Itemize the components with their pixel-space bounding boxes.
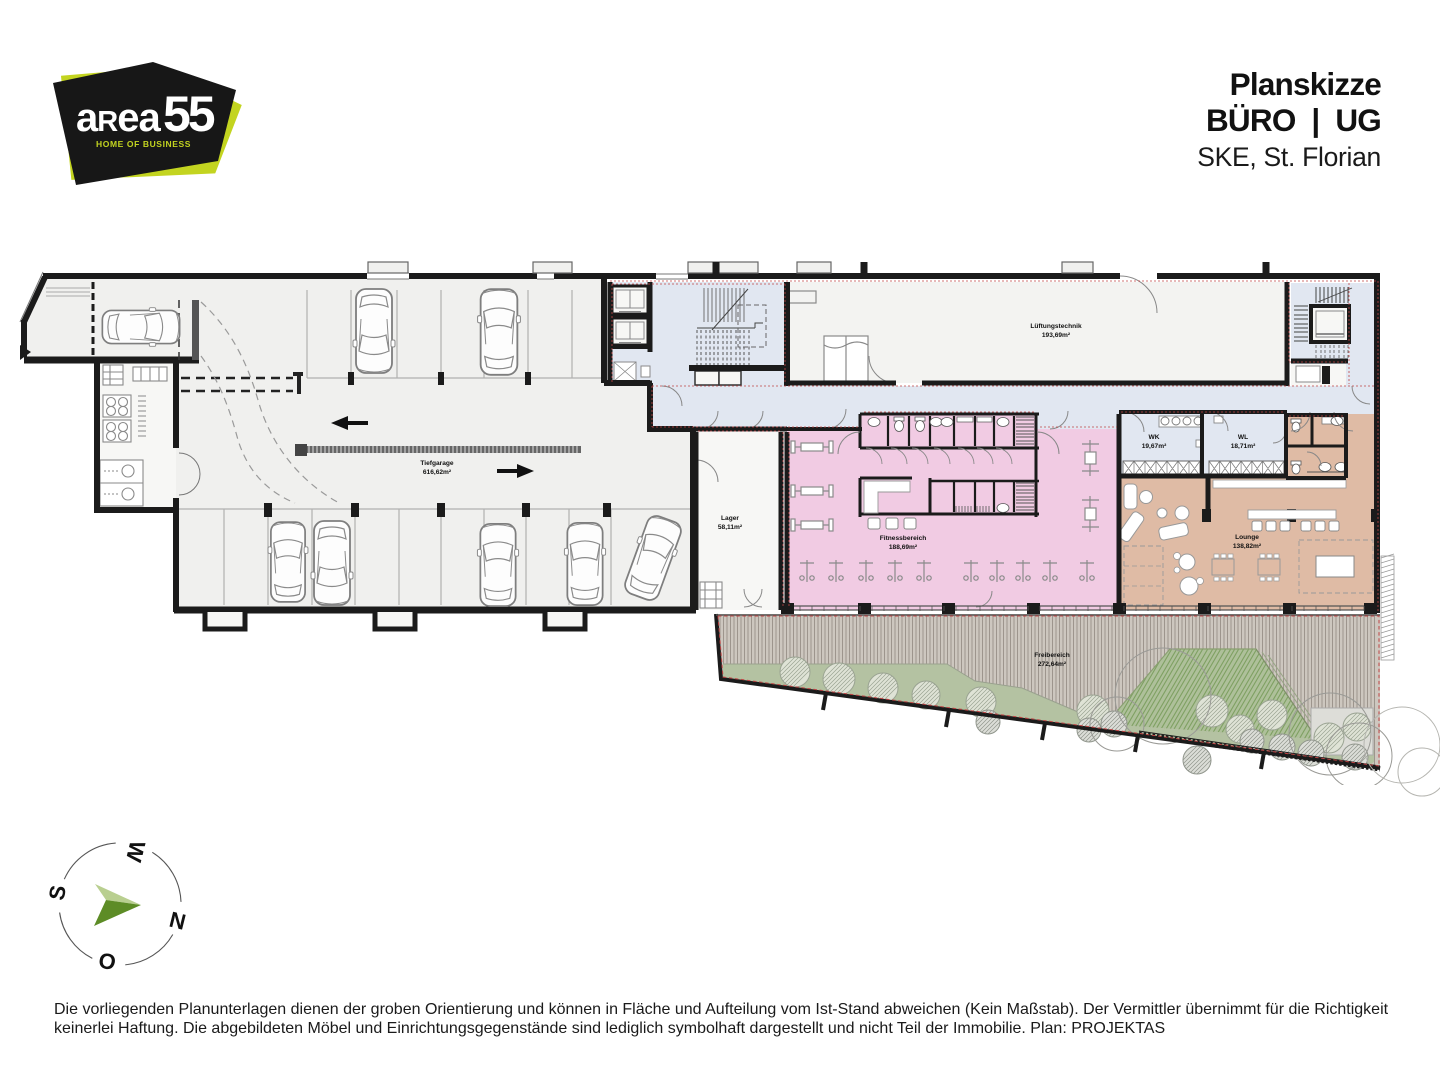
svg-text:WL: WL [1238,434,1248,441]
svg-text:Planskizze: Planskizze [1230,66,1382,102]
svg-text:Tiefgarage: Tiefgarage [420,460,454,467]
svg-text:58,11m²: 58,11m² [718,524,743,531]
svg-text:55: 55 [163,86,215,142]
svg-text:Lounge: Lounge [1235,534,1259,541]
svg-text:Lüftungstechnik: Lüftungstechnik [1030,323,1082,330]
svg-text:Freibereich: Freibereich [1034,652,1070,659]
svg-text:Fitnessbereich: Fitnessbereich [880,535,927,542]
svg-text:272,64m²: 272,64m² [1038,661,1067,668]
svg-text:WK: WK [1149,434,1160,441]
svg-text:HOME OF BUSINESS: HOME OF BUSINESS [96,139,191,149]
svg-text:138,82m²: 138,82m² [1233,543,1262,550]
svg-text:188,69m²: 188,69m² [889,544,918,551]
svg-text:616,62m²: 616,62m² [423,469,452,476]
svg-text:Lager: Lager [721,515,739,522]
svg-text:18,71m²: 18,71m² [1231,443,1256,450]
svg-text:19,67m²: 19,67m² [1142,443,1167,450]
svg-text:SKE, St. Florian: SKE, St. Florian [1197,142,1381,172]
svg-text:aRea: aRea [76,96,161,140]
svg-text:BÜRO | UG: BÜRO | UG [1206,102,1381,138]
svg-text:193,69m²: 193,69m² [1042,332,1071,339]
